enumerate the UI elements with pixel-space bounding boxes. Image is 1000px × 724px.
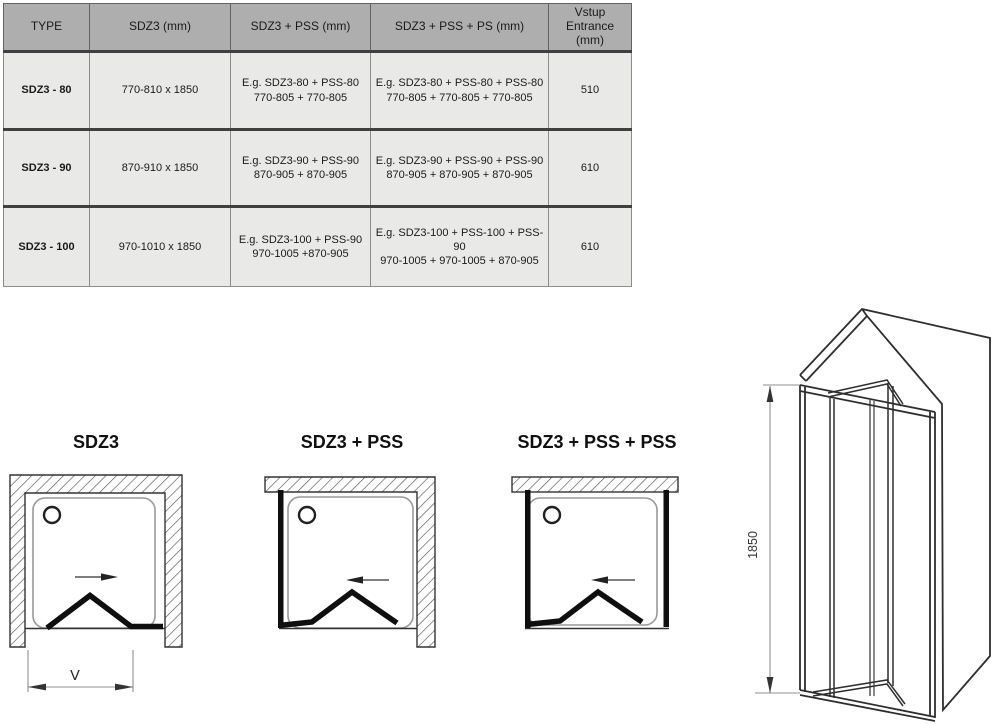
combo-sizes: 870-905 + 870-905 + 870-905	[374, 168, 545, 182]
drain-icon	[544, 507, 560, 523]
table-row: SDZ3 - 80 770-810 x 1850 E.g. SDZ3-80 + …	[4, 52, 632, 130]
plan-view-sdz3-pss	[255, 470, 445, 705]
pss-fixed-wall-left	[278, 490, 284, 628]
height-dim-label: 1850	[746, 531, 760, 559]
pss-fixed-wall-right	[664, 490, 670, 627]
table-header-row: TYPE SDZ3 (mm) SDZ3 + PSS (mm) SDZ3 + PS…	[4, 4, 632, 52]
cell-combo-pss: E.g. SDZ3-100 + PSS-90 970-1005 +870-905	[231, 207, 371, 287]
combo-sizes: 970-1005 +870-905	[234, 247, 367, 261]
cell-combo-pss-ps: E.g. SDZ3-80 + PSS-80 + PSS-80 770-805 +…	[371, 52, 549, 130]
plan-title-sdz3-pss: SDZ3 + PSS	[301, 432, 404, 453]
table-row: SDZ3 - 90 870-910 x 1850 E.g. SDZ3-90 + …	[4, 130, 632, 207]
combo-sizes: 970-1005 + 970-1005 + 870-905	[374, 254, 545, 268]
combo-desc: E.g. SDZ3-100 + PSS-100 + PSS-90	[374, 226, 545, 255]
height-dimension: 1850	[746, 385, 800, 693]
walls-outline	[800, 309, 990, 710]
cell-entrance: 610	[549, 207, 632, 287]
combo-desc: E.g. SDZ3-80 + PSS-80 + PSS-80	[374, 76, 545, 90]
entrance-dim-label: V	[70, 668, 80, 684]
cell-entrance: 610	[549, 130, 632, 207]
plan-view-sdz3: V	[5, 470, 190, 705]
plan-title-sdz3: SDZ3	[73, 432, 119, 453]
elevation-view: 1850	[740, 300, 1000, 724]
cell-entrance: 510	[549, 52, 632, 130]
folded-door-panels	[813, 380, 905, 706]
col-header-sdz3-pss-ps: SDZ3 + PSS + PS (mm)	[371, 4, 549, 52]
door-frame	[800, 385, 935, 721]
combo-sizes: 770-805 + 770-805	[234, 91, 367, 105]
table-row: SDZ3 - 100 970-1010 x 1850 E.g. SDZ3-100…	[4, 207, 632, 287]
combo-sizes: 770-805 + 770-805 + 770-805	[374, 91, 545, 105]
col-header-sdz3-pss: SDZ3 + PSS (mm)	[231, 4, 371, 52]
combo-desc: E.g. SDZ3-80 + PSS-80	[234, 76, 367, 90]
cell-size: 770-810 x 1850	[90, 52, 231, 130]
entrance-dimension: V	[28, 650, 133, 692]
dim-arrow-down-icon	[767, 677, 774, 693]
pss-fixed-wall-left	[525, 490, 531, 628]
cell-type: SDZ3 - 100	[4, 207, 90, 287]
cell-combo-pss: E.g. SDZ3-80 + PSS-80 770-805 + 770-805	[231, 52, 371, 130]
combo-desc: E.g. SDZ3-90 + PSS-90 + PSS-90	[374, 154, 545, 168]
cell-size: 870-910 x 1850	[90, 130, 231, 207]
drain-icon	[299, 507, 315, 523]
dim-arrow-left-icon	[28, 684, 46, 691]
cell-size: 970-1010 x 1850	[90, 207, 231, 287]
cell-combo-pss: E.g. SDZ3-90 + PSS-90 870-905 + 870-905	[231, 130, 371, 207]
col-header-sdz3: SDZ3 (mm)	[90, 4, 231, 52]
plan-title-sdz3-pss-pss: SDZ3 + PSS + PSS	[517, 432, 676, 453]
wall-hatched	[512, 477, 678, 492]
spec-table: TYPE SDZ3 (mm) SDZ3 + PSS (mm) SDZ3 + PS…	[3, 3, 632, 287]
col-header-type: TYPE	[4, 4, 90, 52]
col-header-entrance: Vstup Entrance (mm)	[549, 4, 632, 52]
cell-type: SDZ3 - 80	[4, 52, 90, 130]
dim-arrow-right-icon	[115, 684, 133, 691]
cell-combo-pss-ps: E.g. SDZ3-90 + PSS-90 + PSS-90 870-905 +…	[371, 130, 549, 207]
combo-desc: E.g. SDZ3-100 + PSS-90	[234, 233, 367, 247]
dim-arrow-up-icon	[767, 386, 774, 402]
cell-type: SDZ3 - 90	[4, 130, 90, 207]
combo-sizes: 870-905 + 870-905	[234, 168, 367, 182]
combo-desc: E.g. SDZ3-90 + PSS-90	[234, 154, 367, 168]
plan-view-sdz3-pss-pss	[495, 470, 685, 705]
drain-icon	[44, 507, 60, 523]
datasheet-page: TYPE SDZ3 (mm) SDZ3 + PSS (mm) SDZ3 + PS…	[0, 0, 1000, 724]
cell-combo-pss-ps: E.g. SDZ3-100 + PSS-100 + PSS-90 970-100…	[371, 207, 549, 287]
